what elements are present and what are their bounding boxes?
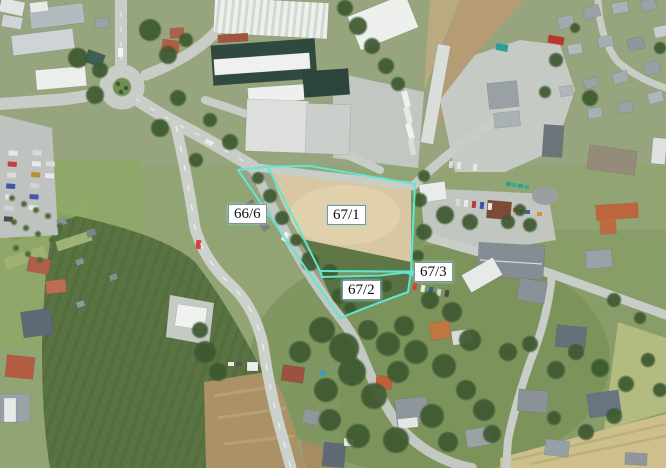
aerial-imagery [0,0,666,468]
parcel-label-66-6: 66/6 [228,204,267,224]
parcel-label-67-2: 67/2 [342,280,381,300]
map-viewport[interactable]: 66/6 67/1 67/2 67/3 [0,0,666,468]
parcel-label-67-3: 67/3 [414,262,453,282]
roundabout [106,71,138,103]
parcel-label-67-1: 67/1 [327,205,366,225]
parcel-strip-67-3-north[interactable] [320,271,410,272]
